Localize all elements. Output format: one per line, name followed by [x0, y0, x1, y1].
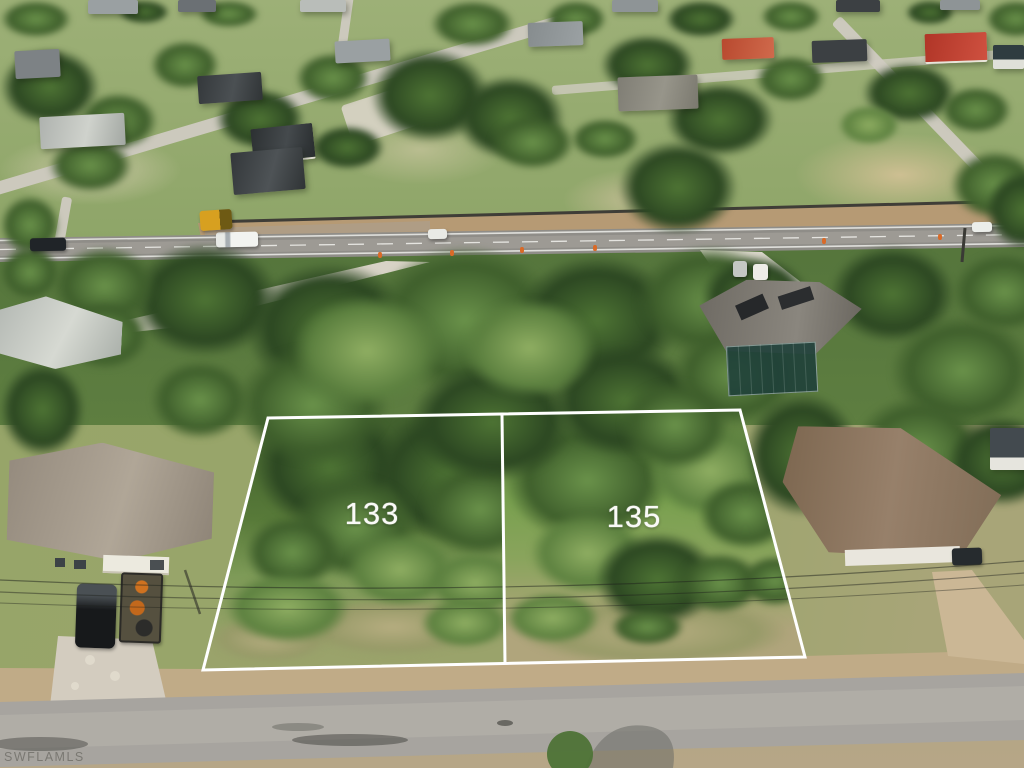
aerial-photo: 133 135 SWFLAMLS: [0, 0, 1024, 768]
overlay-lines: [0, 0, 1024, 768]
lot-divider-line: [502, 415, 505, 664]
utility-pole: [185, 570, 200, 614]
lot-label-135: 135: [584, 499, 684, 535]
mls-watermark: SWFLAMLS: [4, 750, 85, 764]
lot-label-133: 133: [322, 496, 422, 532]
utility-pole: [962, 228, 965, 262]
